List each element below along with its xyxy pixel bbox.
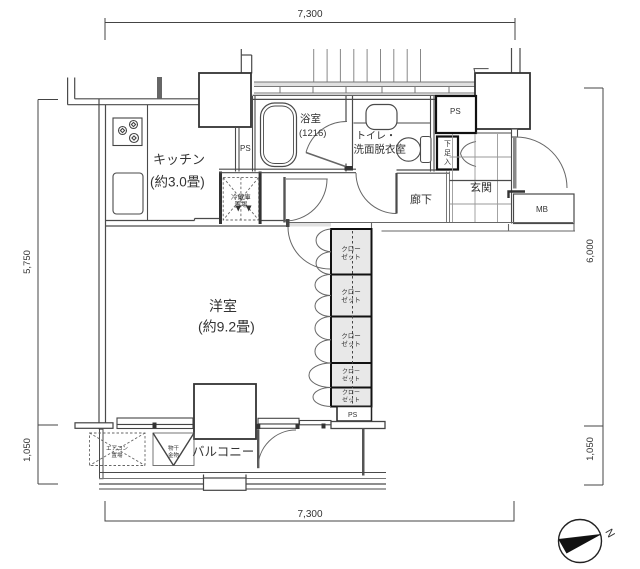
svg-text:バルコニー: バルコニー xyxy=(192,445,254,459)
svg-text:MB: MB xyxy=(536,205,548,214)
svg-text:足: 足 xyxy=(444,149,451,157)
svg-text:(約9.2畳): (約9.2畳) xyxy=(198,319,255,335)
svg-text:玄関: 玄関 xyxy=(470,180,492,194)
svg-text:ゼット: ゼット xyxy=(341,339,361,348)
svg-text:ゼット: ゼット xyxy=(342,396,360,404)
svg-text:下: 下 xyxy=(444,140,451,148)
svg-text:1,050: 1,050 xyxy=(585,437,596,461)
svg-text:(約3.0畳): (約3.0畳) xyxy=(150,175,205,190)
svg-text:クロー: クロー xyxy=(341,288,361,296)
svg-text:廊下: 廊下 xyxy=(410,192,432,206)
svg-text:キッチン: キッチン xyxy=(153,152,205,167)
svg-text:金物: 金物 xyxy=(168,451,180,459)
svg-text:クロー: クロー xyxy=(341,245,361,253)
svg-text:洋室: 洋室 xyxy=(209,298,237,314)
svg-text:(1216): (1216) xyxy=(299,128,326,139)
svg-text:1,050: 1,050 xyxy=(22,438,33,462)
svg-text:クロー: クロー xyxy=(342,390,360,397)
svg-text:トイレ・: トイレ・ xyxy=(356,131,396,142)
svg-text:PS: PS xyxy=(240,144,251,153)
svg-text:浴室: 浴室 xyxy=(300,112,321,125)
svg-text:ゼット: ゼット xyxy=(341,252,361,261)
svg-text:5,750: 5,750 xyxy=(22,250,33,274)
svg-text:PS: PS xyxy=(450,107,461,116)
svg-text:洗面脱衣室: 洗面脱衣室 xyxy=(354,143,407,156)
svg-text:PS: PS xyxy=(348,412,358,419)
svg-text:クロー: クロー xyxy=(342,369,360,376)
svg-text:エアコン: エアコン xyxy=(106,445,129,452)
svg-text:クロー: クロー xyxy=(341,332,361,340)
svg-text:冷蔵庫: 冷蔵庫 xyxy=(231,192,251,201)
svg-text:入: 入 xyxy=(444,158,451,166)
svg-text:ゼット: ゼット xyxy=(341,295,361,304)
svg-text:7,300: 7,300 xyxy=(297,509,322,520)
svg-text:7,300: 7,300 xyxy=(297,9,322,20)
svg-text:置場: 置場 xyxy=(111,451,123,459)
svg-text:6,000: 6,000 xyxy=(585,239,596,263)
svg-text:物干: 物干 xyxy=(168,444,180,452)
svg-text:ゼット: ゼット xyxy=(342,375,360,383)
